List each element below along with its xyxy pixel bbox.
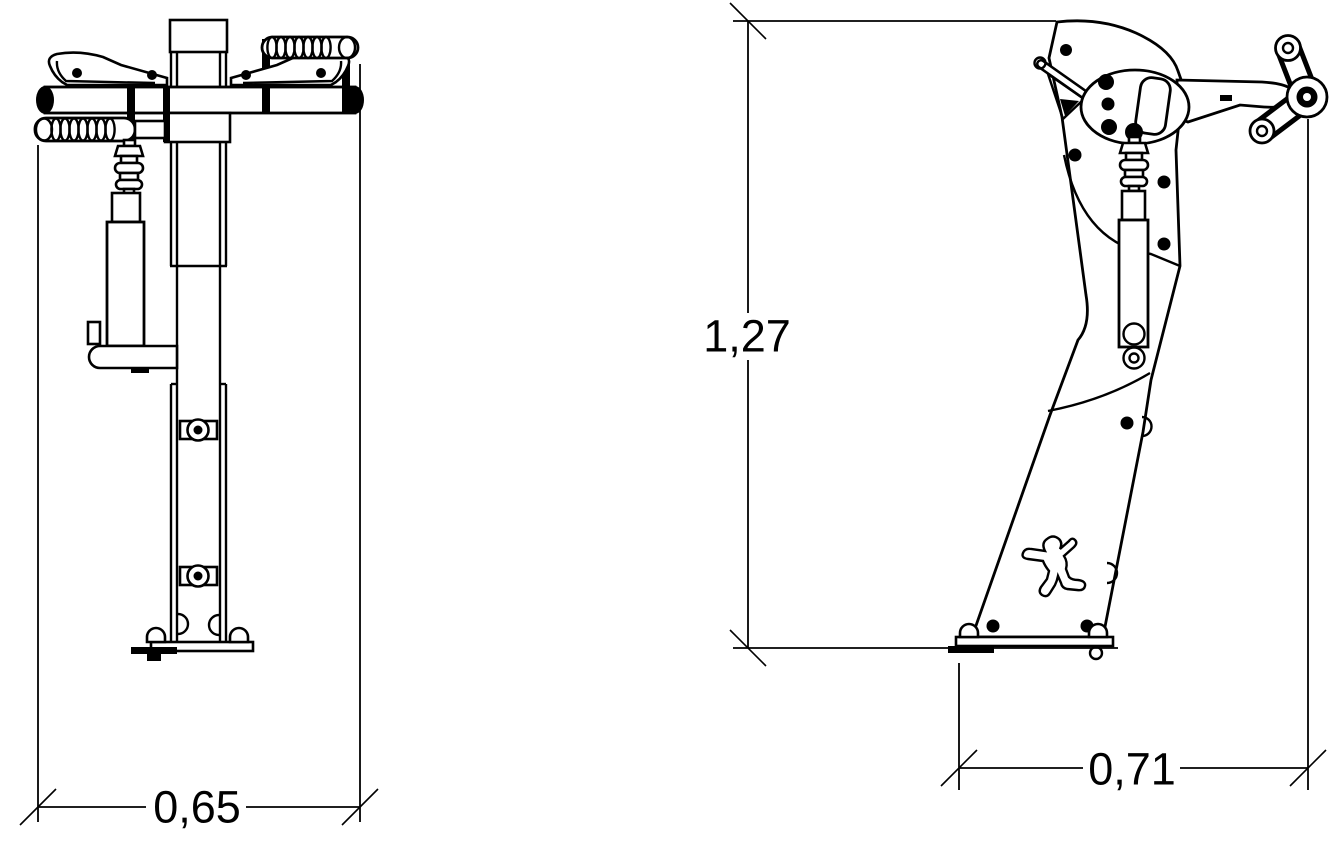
hub-hole — [1101, 119, 1117, 135]
front-view: 0,65 — [20, 20, 378, 833]
ball-joint-side — [1120, 137, 1148, 191]
post-bolt-upper — [180, 420, 217, 441]
anchor-bolt — [1089, 624, 1107, 637]
dimension-label-width: 0,65 — [153, 782, 241, 833]
bar-end-cap-left — [36, 86, 54, 114]
post-cutout-right — [209, 615, 219, 635]
anchor-bolt — [230, 628, 248, 642]
hand-grip-left — [35, 118, 165, 141]
bar-collar — [165, 113, 230, 142]
gas-spring-front — [88, 193, 177, 373]
dimension-width: 0,65 — [20, 64, 378, 833]
hub-hole — [1098, 74, 1114, 90]
anchor-bolt — [147, 628, 165, 642]
plate-hole — [1158, 176, 1171, 189]
pivot-upper — [1276, 36, 1301, 61]
post-cutout-left — [178, 614, 188, 634]
pivot-lower — [1250, 119, 1274, 143]
side-view: 1,27 — [703, 3, 1327, 795]
post-bolt-lower — [180, 566, 217, 587]
plate-hole — [1158, 238, 1171, 251]
dimension-label-depth: 0,71 — [1088, 744, 1176, 795]
dimension-label-height: 1,27 — [703, 311, 791, 362]
plate-hole — [1060, 44, 1072, 56]
base-plate-front — [131, 628, 253, 661]
plate-hole — [1121, 417, 1134, 430]
spring-bracket — [89, 346, 177, 368]
ball-joint-front — [115, 140, 143, 194]
anchor-bolt — [960, 624, 978, 637]
plate-hole — [1069, 149, 1082, 162]
pivot-hub — [1081, 70, 1189, 144]
drawing-canvas: 0,65 1,27 — [0, 0, 1331, 861]
armrest-plate-left — [49, 53, 167, 85]
hub-hole — [1102, 98, 1115, 111]
grip-arm — [135, 121, 165, 138]
technical-drawing: 0,65 1,27 — [0, 0, 1331, 861]
hand-grip-right — [262, 37, 358, 58]
gas-spring-side — [1119, 191, 1148, 369]
plate-hole — [987, 620, 1000, 633]
